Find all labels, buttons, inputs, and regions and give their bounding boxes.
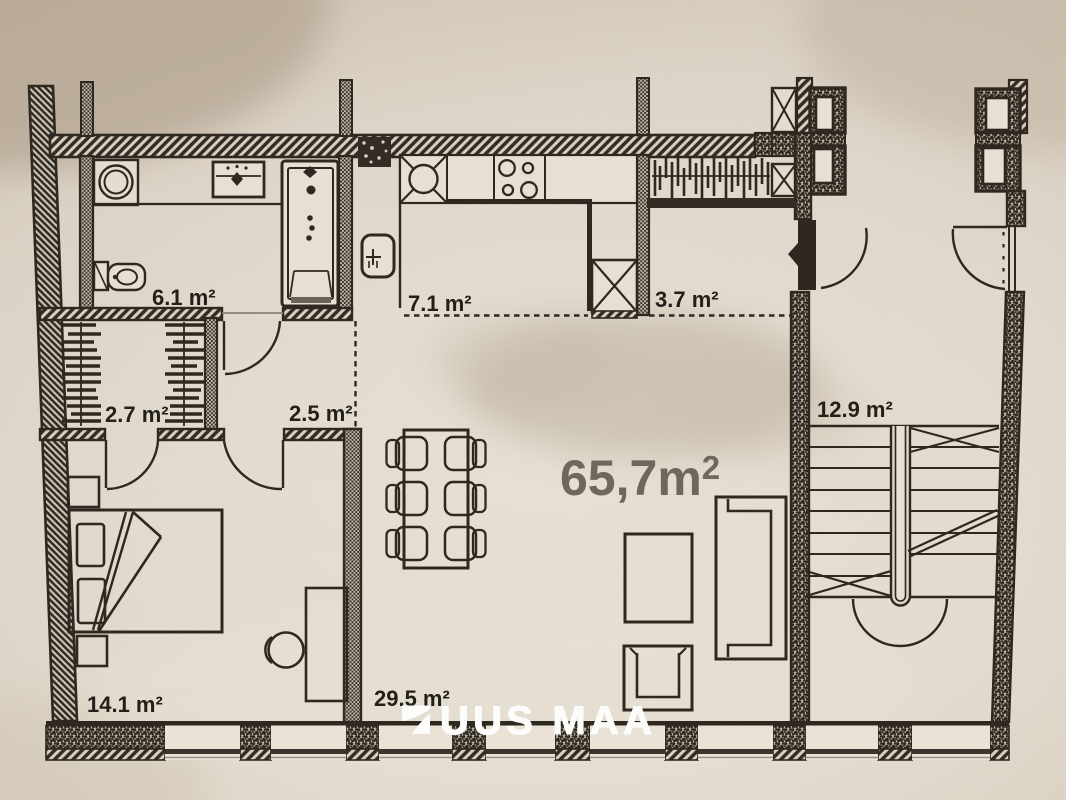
svg-text:2.5 m²: 2.5 m² — [289, 401, 353, 426]
svg-text:14.1 m²: 14.1 m² — [87, 692, 163, 717]
svg-text:7.1 m²: 7.1 m² — [408, 291, 472, 316]
svg-text:UUS MAA: UUS MAA — [440, 699, 656, 743]
svg-text:6.1 m²: 6.1 m² — [152, 285, 216, 310]
svg-text:12.9 m²: 12.9 m² — [817, 397, 893, 422]
svg-text:3.7 m²: 3.7 m² — [655, 287, 719, 312]
svg-text:65,7m2: 65,7m2 — [560, 449, 720, 506]
svg-text:2.7 m²: 2.7 m² — [105, 402, 169, 427]
